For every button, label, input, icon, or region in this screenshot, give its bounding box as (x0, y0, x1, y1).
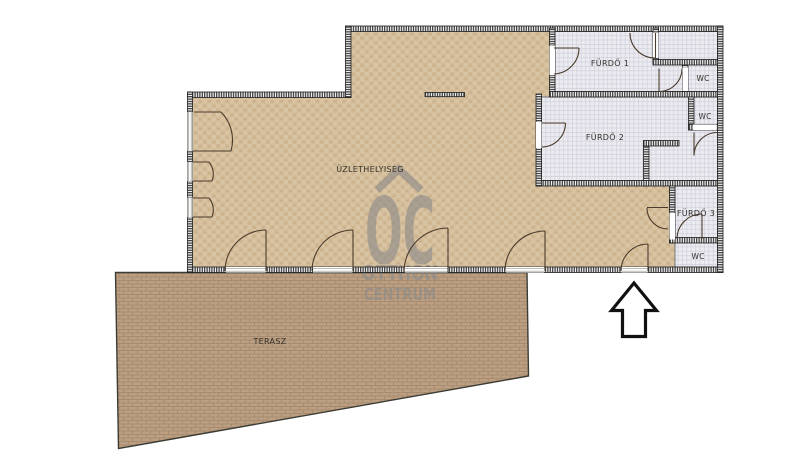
otthon-centrum-watermark: OC OTTHON CENTRUM (362, 170, 438, 306)
room-label-wc-bottom: WC (691, 252, 704, 261)
room-label-furdo-2: FÜRDŐ 2 (586, 132, 624, 142)
wall-top-upper (346, 26, 724, 32)
wall-top-lower (188, 92, 352, 98)
wall-niche-horizontal (644, 141, 680, 147)
room-label-wc-middle: WC (698, 112, 711, 121)
room-label-furdo-1: FÜRDŐ 1 (591, 58, 629, 68)
floor-plan-drawing: OC OTTHON CENTRUM (0, 0, 800, 465)
wall-right (718, 26, 724, 273)
wall-step (346, 26, 352, 98)
wall-furdo1-bottom (550, 92, 718, 98)
wall-wc-top-bottom (653, 60, 718, 66)
terrace-area (116, 273, 529, 449)
wall-niche-vertical (644, 141, 650, 186)
room-label-wc-top: WC (696, 74, 709, 83)
wall-furdo2-bottom (536, 181, 718, 187)
wall-partition-marker (425, 93, 465, 97)
room-label-terasz: TERASZ (252, 337, 286, 346)
floor-plan-page: OC OTTHON CENTRUM (0, 0, 800, 465)
watermark-line1: OTTHON (362, 261, 438, 285)
room-label-furdo-3: FÜRDŐ 3 (677, 208, 715, 218)
watermark-line2: CENTRUM (364, 285, 436, 305)
north-arrow-icon (612, 283, 657, 337)
room-label-uzlethelyiseg: ÜZLETHELYISÉG (336, 163, 404, 174)
